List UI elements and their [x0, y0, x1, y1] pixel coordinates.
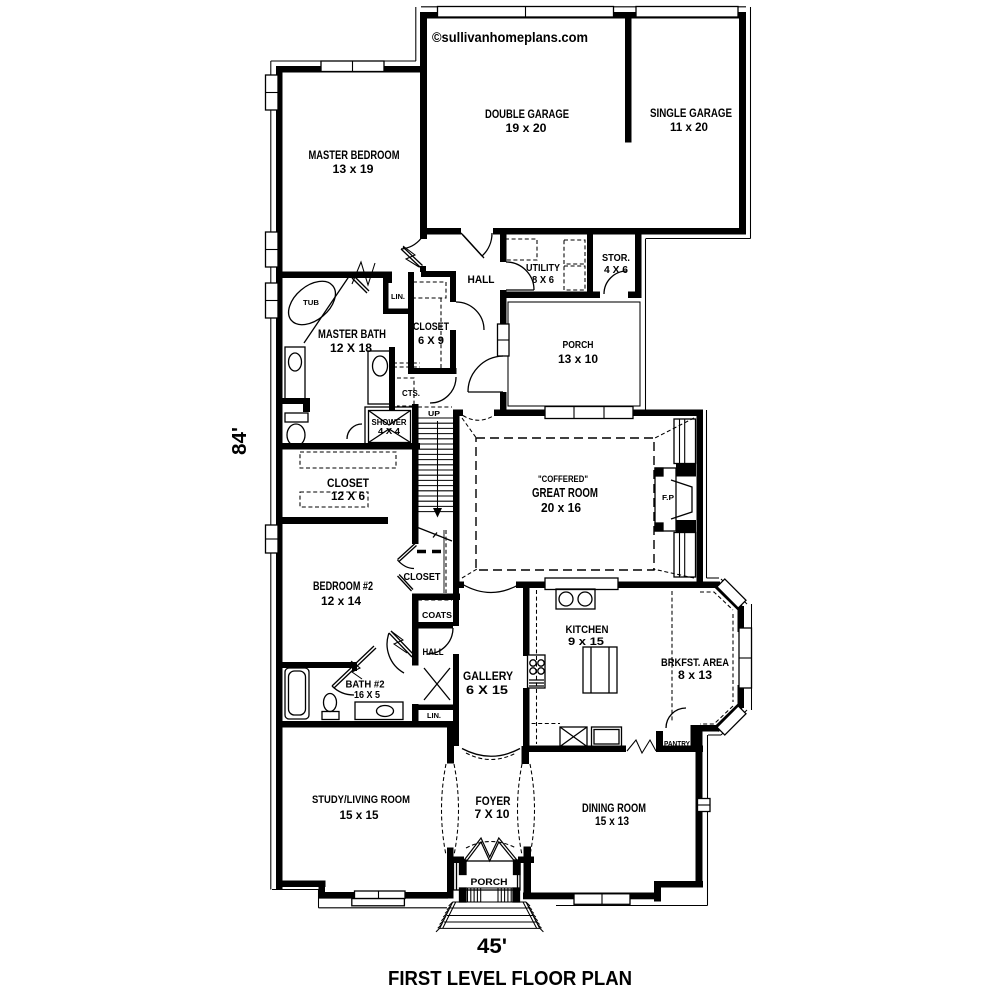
svg-text:84': 84': [229, 427, 251, 455]
svg-text:11 x 20: 11 x 20: [670, 120, 708, 134]
svg-text:6 X 9: 6 X 9: [418, 335, 444, 347]
svg-text:7 X 10: 7 X 10: [475, 809, 510, 821]
svg-text:GREAT ROOM: GREAT ROOM: [532, 486, 598, 500]
svg-text:12 X 6: 12 X 6: [331, 491, 365, 503]
svg-text:BRKFST. AREA: BRKFST. AREA: [661, 657, 729, 669]
svg-text:20 x 16: 20 x 16: [541, 501, 581, 515]
svg-text:DOUBLE GARAGE: DOUBLE GARAGE: [485, 107, 569, 121]
svg-text:KITCHEN: KITCHEN: [566, 624, 609, 636]
svg-text:4 X 4: 4 X 4: [378, 427, 401, 436]
svg-text:"COFFERED": "COFFERED": [538, 474, 588, 485]
svg-text:FIRST LEVEL FLOOR PLAN: FIRST LEVEL FLOOR PLAN: [388, 968, 632, 990]
svg-text:UP: UP: [428, 409, 440, 418]
svg-text:STUDY/LIVING ROOM: STUDY/LIVING ROOM: [312, 794, 410, 806]
svg-text:PANTRY: PANTRY: [664, 739, 690, 748]
svg-text:FOYER: FOYER: [476, 796, 512, 808]
svg-text:9 x 15: 9 x 15: [568, 636, 604, 648]
svg-text:TUB: TUB: [303, 300, 319, 307]
svg-text:GALLERY: GALLERY: [463, 669, 513, 683]
svg-text:HALL: HALL: [423, 647, 444, 658]
svg-text:6 X 15: 6 X 15: [466, 683, 508, 697]
svg-text:MASTER BATH: MASTER BATH: [318, 329, 386, 341]
svg-text:13 x 10: 13 x 10: [558, 354, 598, 366]
svg-text:HALL: HALL: [468, 274, 495, 286]
svg-text:©sullivanhomeplans.com: ©sullivanhomeplans.com: [432, 29, 588, 45]
svg-text:CLOSET: CLOSET: [404, 571, 442, 583]
svg-text:8 x 13: 8 x 13: [678, 670, 712, 682]
svg-text:12 X 18: 12 X 18: [330, 343, 373, 355]
svg-text:CTS.: CTS.: [402, 389, 420, 398]
svg-text:15 x 13: 15 x 13: [595, 816, 629, 828]
svg-text:13 x 19: 13 x 19: [333, 162, 374, 176]
svg-text:PORCH: PORCH: [471, 877, 508, 888]
svg-text:16 X 5: 16 X 5: [354, 689, 380, 701]
svg-text:4 X 6: 4 X 6: [604, 264, 628, 276]
svg-text:STOR.: STOR.: [602, 252, 630, 264]
svg-text:CLOSET: CLOSET: [413, 321, 449, 333]
svg-text:PORCH: PORCH: [563, 339, 594, 351]
svg-text:LIN.: LIN.: [391, 292, 405, 301]
svg-text:UTILITY: UTILITY: [526, 262, 560, 274]
svg-text:SHOWER: SHOWER: [372, 418, 407, 427]
svg-text:SINGLE GARAGE: SINGLE GARAGE: [650, 106, 732, 120]
svg-text:12 x 14: 12 x 14: [321, 594, 361, 608]
svg-text:MASTER BEDROOM: MASTER BEDROOM: [309, 148, 400, 162]
svg-text:F.P: F.P: [662, 495, 674, 502]
svg-text:COATS: COATS: [422, 610, 452, 620]
svg-text:DINING ROOM: DINING ROOM: [582, 803, 646, 815]
svg-text:19 x 20: 19 x 20: [506, 121, 547, 135]
svg-text:15 x 15: 15 x 15: [340, 808, 379, 822]
svg-text:45': 45': [477, 935, 507, 958]
svg-text:8 X 6: 8 X 6: [532, 274, 554, 286]
svg-text:CLOSET: CLOSET: [327, 478, 369, 490]
svg-text:LIN.: LIN.: [427, 711, 441, 720]
svg-text:BEDROOM #2: BEDROOM #2: [313, 581, 373, 593]
